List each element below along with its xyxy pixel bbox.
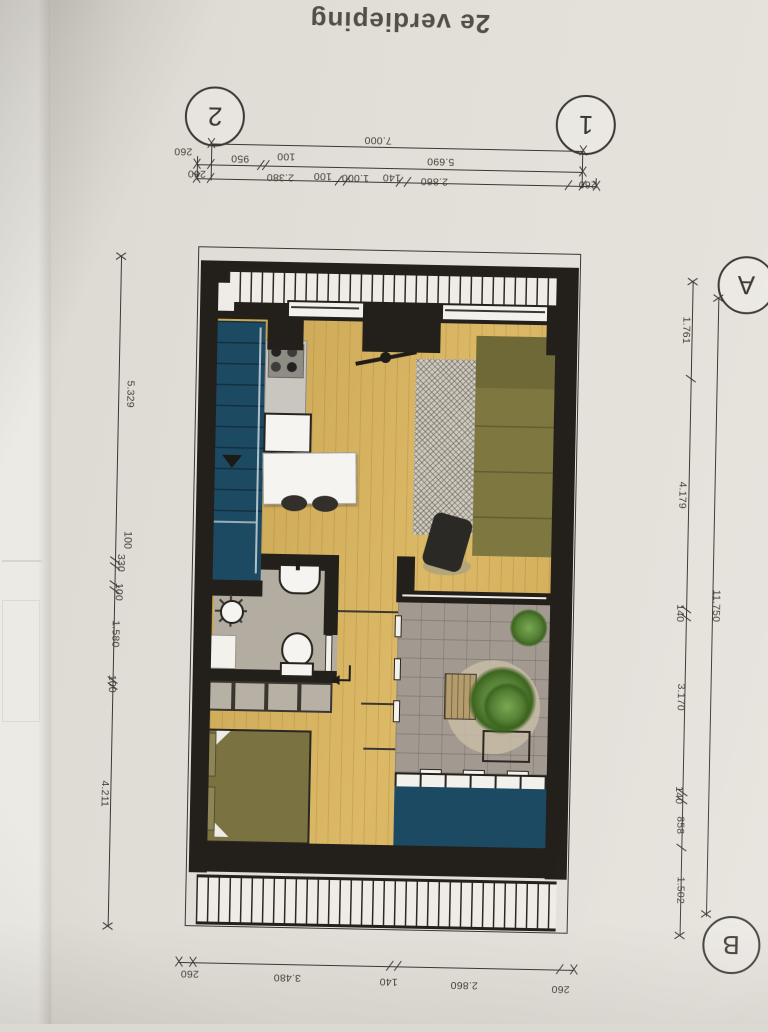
bar-stool: [281, 495, 307, 512]
blanket-fold: [214, 823, 228, 837]
void-area: [393, 786, 546, 849]
dim-line: [211, 143, 583, 152]
railing-segment: [393, 700, 400, 722]
dim-label: 950: [231, 153, 249, 164]
dim-label: 1.580: [110, 614, 121, 654]
chimney-block: [267, 316, 304, 351]
photo-background: 2e verdieping: [0, 0, 768, 1024]
dim-label: 5.690: [427, 156, 454, 167]
sofa-chaise: [476, 336, 556, 390]
wardrobe: [200, 680, 333, 713]
blanket-fold: [216, 731, 230, 745]
dim-line: [179, 962, 574, 971]
bathroom-right-wall: [324, 555, 340, 635]
grid-bubble-A: A: [717, 256, 768, 315]
bathroom-door-leaf: [325, 635, 333, 673]
dim-label: 140: [674, 593, 685, 633]
dim-label: 2.380: [267, 172, 294, 183]
dim-label: 260: [181, 968, 199, 979]
dim-label: 858: [674, 805, 685, 845]
dim-label: 11.750: [711, 586, 722, 626]
sink-tap: [296, 560, 300, 570]
dim-label: 7.000: [364, 135, 391, 146]
stair-direction-arrow: [222, 455, 242, 468]
bar-stool: [312, 496, 338, 513]
dim-label: 1.502: [675, 870, 686, 910]
railing-segment: [394, 658, 401, 680]
entry-arrow-bar: [339, 679, 351, 681]
window-pier: [362, 302, 441, 354]
grid-bubble-1-label: 1: [578, 112, 593, 138]
dim-label: 2.860: [450, 979, 477, 990]
wardrobe-door: [299, 682, 333, 713]
dim-label: 4.179: [677, 475, 688, 515]
grid-bubble-B: B: [702, 915, 761, 974]
entry-arrow-head: [332, 675, 340, 685]
dim-label: 1.761: [680, 310, 691, 350]
dim-label: 260: [551, 983, 569, 994]
grid-bubble-B-label: B: [722, 932, 740, 958]
dim-label: 260: [174, 146, 192, 157]
dim-label: 3.170: [675, 677, 686, 717]
dim-label: 5.329: [125, 374, 136, 414]
wardrobe-door: [266, 682, 300, 713]
floor-plan-sheet: 2e verdieping: [0, 0, 768, 1032]
wardrobe-door: [233, 681, 267, 712]
window: [441, 303, 553, 323]
toilet-tank: [280, 662, 314, 678]
railing-segment: [394, 615, 401, 637]
roof-window-hatch-bottom: [196, 874, 557, 931]
roof-notch: [218, 283, 235, 311]
grid-bubble-A-label: A: [738, 272, 756, 298]
kitchen-island: [262, 452, 356, 505]
dim-label: 100: [314, 171, 332, 182]
planter-box: [482, 730, 531, 763]
dim-label: 100: [277, 151, 295, 162]
grid-bubble-2-label: 2: [207, 103, 222, 129]
dim-label: 4.211: [99, 774, 110, 814]
dim-label: 3.480: [274, 972, 301, 983]
kitchen-sink-cabinet: [263, 413, 312, 454]
dim-label: 140: [379, 976, 397, 987]
dim-label: 2.860: [421, 176, 448, 187]
page-title: 2e verdieping: [260, 1, 541, 40]
